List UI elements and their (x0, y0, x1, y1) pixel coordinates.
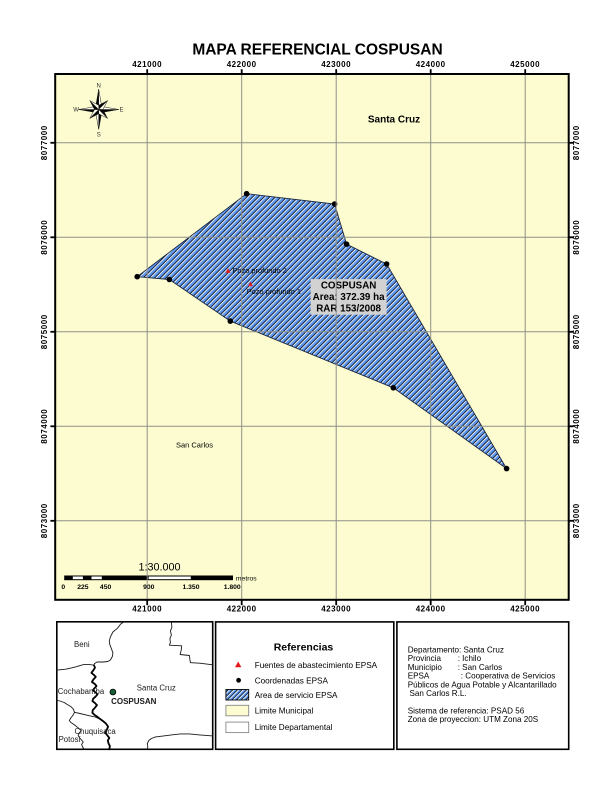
svg-text:8073000: 8073000 (40, 503, 49, 538)
svg-text:900: 900 (143, 584, 155, 591)
svg-text:1:30.000: 1:30.000 (138, 561, 180, 573)
svg-text:Area: 372.39 ha: Area: 372.39 ha (313, 292, 385, 303)
svg-text:Potosí: Potosí (59, 735, 82, 744)
svg-text:425000: 425000 (510, 605, 540, 614)
svg-text:8077000: 8077000 (572, 125, 581, 160)
svg-text:Referencias: Referencias (274, 641, 334, 653)
svg-text:8075000: 8075000 (40, 314, 49, 349)
svg-text:Zona de proyeccion: UTM Zona 2: Zona de proyeccion: UTM Zona 20S (408, 715, 539, 724)
svg-text:425000: 425000 (510, 60, 540, 69)
svg-text:: Cooperativa de Servicios: : Cooperativa de Servicios (461, 672, 555, 681)
svg-text:423000: 423000 (321, 60, 351, 69)
svg-text:Area de servicio EPSA: Area de servicio EPSA (255, 691, 338, 700)
svg-text:: Ichilo: : Ichilo (458, 654, 482, 663)
svg-text:Cochabamba: Cochabamba (58, 687, 105, 696)
svg-text:0: 0 (61, 584, 65, 591)
svg-text:Chuquisaca: Chuquisaca (75, 727, 117, 736)
svg-text:450: 450 (100, 584, 112, 591)
svg-text:1.350: 1.350 (182, 584, 199, 591)
svg-text:8074000: 8074000 (572, 409, 581, 444)
svg-text:423000: 423000 (321, 605, 351, 614)
svg-text:Pozo profundo 2: Pozo profundo 2 (233, 266, 287, 275)
svg-text:Beni: Beni (74, 640, 90, 649)
svg-text:MAPA REFERENCIAL COSPUSAN: MAPA REFERENCIAL COSPUSAN (192, 42, 442, 59)
svg-text:Públicos de Agua Potable y Alc: Públicos de Agua Potable y Alcantarillad… (408, 680, 557, 689)
svg-text:8076000: 8076000 (40, 220, 49, 255)
svg-text:: San Carlos: : San Carlos (458, 663, 503, 672)
svg-text:422000: 422000 (227, 60, 257, 69)
svg-text:COSPUSAN: COSPUSAN (321, 281, 377, 292)
svg-text:W: W (73, 108, 79, 114)
svg-text:Santa Cruz: Santa Cruz (368, 115, 420, 126)
svg-text:422000: 422000 (227, 605, 257, 614)
svg-text:1.800: 1.800 (224, 584, 241, 591)
svg-text:Pozo profundo 1: Pozo profundo 1 (247, 287, 301, 296)
svg-text:S: S (97, 132, 101, 138)
svg-text:San Carlos: San Carlos (176, 440, 213, 449)
svg-text:421000: 421000 (132, 605, 162, 614)
svg-text:Limite Municipal: Limite Municipal (255, 707, 314, 716)
svg-text:Municipio: Municipio (408, 663, 443, 672)
svg-text:8077000: 8077000 (40, 125, 49, 160)
svg-text:San Carlos R.L.: San Carlos R.L. (410, 689, 467, 698)
svg-text:8076000: 8076000 (572, 220, 581, 255)
svg-text:COSPUSAN: COSPUSAN (111, 697, 157, 706)
svg-text:Coordenadas EPSA: Coordenadas EPSA (255, 677, 329, 686)
svg-text:EPSA: EPSA (408, 672, 430, 681)
svg-text:8073000: 8073000 (572, 503, 581, 538)
svg-text:8074000: 8074000 (40, 409, 49, 444)
svg-text:424000: 424000 (416, 605, 446, 614)
svg-text:421000: 421000 (132, 60, 162, 69)
svg-text:424000: 424000 (416, 60, 446, 69)
svg-text:N: N (97, 84, 101, 90)
svg-text:Sistema de referencia: PSAD 56: Sistema de referencia: PSAD 56 (408, 706, 525, 715)
svg-text:Fuentes de abastecimiento EPSA: Fuentes de abastecimiento EPSA (255, 661, 378, 670)
svg-text:Provincia: Provincia (408, 654, 442, 663)
svg-text:RAR 153/2008: RAR 153/2008 (316, 304, 381, 315)
svg-text:225: 225 (77, 584, 89, 591)
svg-text:Santa Cruz: Santa Cruz (137, 683, 176, 692)
svg-text:8075000: 8075000 (572, 314, 581, 349)
svg-text:E: E (119, 108, 123, 114)
svg-text:metros: metros (236, 575, 257, 582)
svg-text:Limite Departamental: Limite Departamental (255, 723, 333, 732)
